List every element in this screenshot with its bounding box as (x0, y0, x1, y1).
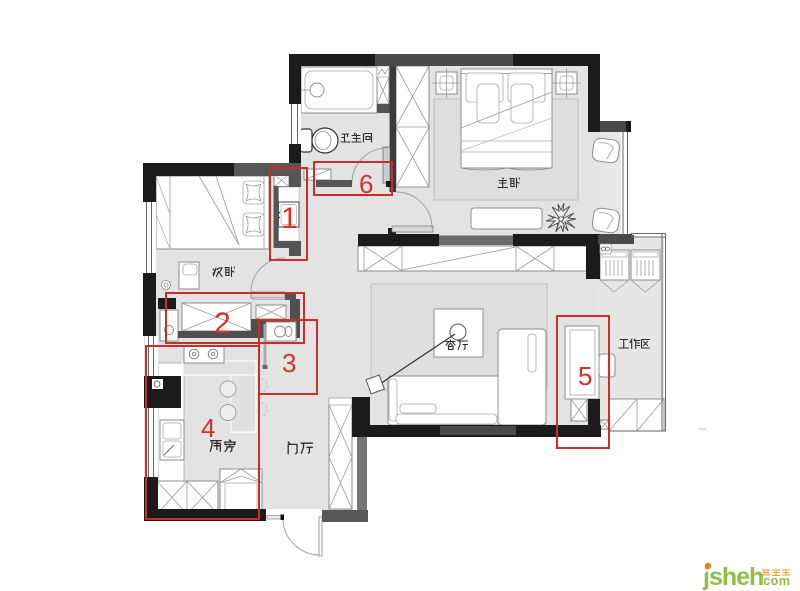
svg-text:5: 5 (578, 361, 592, 391)
svg-text:4: 4 (201, 413, 215, 443)
svg-text:1: 1 (281, 202, 298, 235)
svg-text:6: 6 (359, 169, 373, 199)
svg-text:3: 3 (282, 348, 296, 378)
svg-text:2: 2 (214, 307, 231, 340)
svg-text:.com: .com (759, 574, 791, 588)
svg-text:jsheh: jsheh (702, 563, 763, 591)
